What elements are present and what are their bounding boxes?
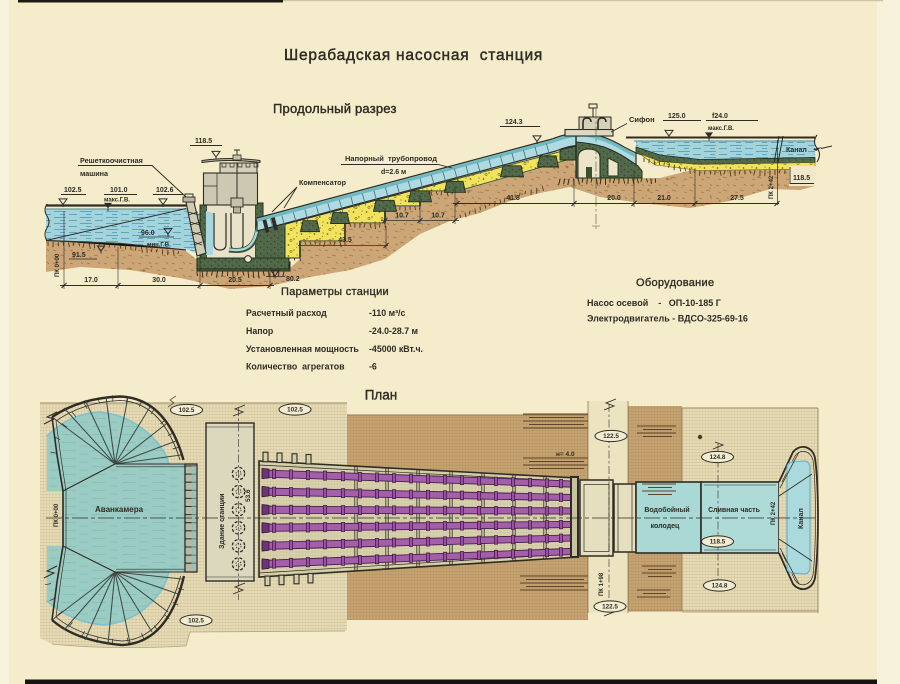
svg-text:Решеткоочистная: Решеткоочистная	[80, 156, 143, 165]
svg-text:118.5: 118.5	[195, 138, 212, 145]
svg-text:102.5: 102.5	[188, 618, 204, 625]
svg-text:Сливная часть: Сливная часть	[708, 507, 761, 514]
svg-text:118.5: 118.5	[793, 175, 810, 182]
svg-text:макс.Г.В.: макс.Г.В.	[708, 126, 734, 132]
svg-text:20.5: 20.5	[228, 277, 242, 284]
svg-text:21.0: 21.0	[657, 195, 671, 202]
svg-text:f24.0: f24.0	[712, 113, 728, 120]
svg-text:План: План	[365, 388, 398, 403]
svg-text:Водобойный: Водобойный	[644, 506, 689, 514]
svg-text:Насос осевой - ОП-10-185: Насос осевой - ОП-10-185 Г	[587, 298, 721, 308]
svg-text:макс.Г.В.: макс.Г.В.	[104, 198, 130, 204]
svg-text:ПК 2+42: ПК 2+42	[769, 175, 775, 199]
svg-text:Здание станции: Здание станции	[219, 494, 226, 549]
svg-text:ПК 0+00: ПК 0+00	[55, 253, 61, 277]
svg-text:17.0: 17.0	[84, 277, 98, 284]
svg-text:мин.Г.В.: мин.Г.В.	[147, 243, 171, 249]
svg-text:Электродвигатель - ВДСО-325-69: Электродвигатель - ВДСО-325-69-16	[587, 314, 748, 324]
svg-text:80.2: 80.2	[286, 276, 300, 283]
svg-text:122.5: 122.5	[602, 604, 618, 611]
svg-text:-24.0-28.7 м: -24.0-28.7 м	[369, 326, 418, 336]
svg-text:27.5: 27.5	[730, 195, 744, 202]
svg-text:ПК 0+00: ПК 0+00	[54, 503, 60, 527]
svg-text:30.0: 30.0	[152, 277, 166, 284]
svg-text:Сифон: Сифон	[629, 115, 655, 124]
svg-text:53.6: 53.6	[245, 489, 252, 502]
svg-text:101.0: 101.0	[110, 187, 128, 194]
svg-text:96.0: 96.0	[141, 230, 155, 237]
svg-text:ПК 1+98: ПК 1+98	[599, 572, 605, 596]
svg-text:125.0: 125.0	[668, 113, 686, 120]
svg-text:43.5: 43.5	[338, 237, 352, 244]
svg-text:124.3: 124.3	[505, 119, 523, 126]
svg-text:91.5: 91.5	[72, 252, 86, 259]
svg-text:102.5: 102.5	[179, 407, 195, 414]
svg-text:41.8: 41.8	[506, 195, 520, 202]
svg-text:н= 4.0: н= 4.0	[556, 451, 575, 458]
svg-text:102.5: 102.5	[64, 187, 82, 194]
svg-text:Параметры станции: Параметры станции	[281, 286, 389, 298]
svg-text:124.8: 124.8	[712, 583, 728, 590]
svg-text:Компенсатор: Компенсатор	[299, 178, 347, 187]
svg-text:Шерабадская насосная станция: Шерабадская насосная станция	[284, 47, 543, 64]
svg-text:Расчетный расход: Расчетный расход	[246, 308, 327, 318]
svg-text:d=2.6 м: d=2.6 м	[381, 169, 406, 176]
svg-text:102.5: 102.5	[287, 407, 303, 414]
svg-text:Напорный трубопровод: Напорный трубопровод	[345, 154, 437, 163]
svg-text:122.5: 122.5	[603, 433, 619, 440]
svg-text:Канал: Канал	[798, 508, 805, 529]
svg-text:Количество агрегатов: Количество агрегатов	[246, 362, 345, 372]
svg-text:20.0: 20.0	[607, 195, 621, 202]
svg-text:-45000 кВт.ч.: -45000 кВт.ч.	[369, 344, 423, 354]
svg-text:Напор: Напор	[246, 326, 274, 336]
svg-text:118.5: 118.5	[710, 539, 726, 546]
svg-text:10.7: 10.7	[431, 213, 445, 220]
svg-text:Канал: Канал	[786, 147, 807, 154]
svg-text:колодец: колодец	[651, 523, 680, 530]
svg-text:ПК 2+42: ПК 2+42	[771, 501, 777, 525]
svg-text:10.7: 10.7	[395, 213, 409, 220]
svg-text:машина: машина	[80, 169, 109, 178]
svg-text:124.8: 124.8	[710, 454, 726, 461]
svg-text:Продольный разрез: Продольный разрез	[273, 101, 397, 116]
svg-text:-110 м³/с: -110 м³/с	[369, 308, 405, 318]
svg-text:-6: -6	[369, 362, 377, 372]
svg-text:102.6: 102.6	[156, 187, 174, 194]
svg-text:Аванкамера: Аванкамера	[95, 505, 144, 514]
svg-text:Установленная мощность: Установленная мощность	[246, 344, 359, 354]
svg-text:Оборудование: Оборудование	[636, 277, 714, 289]
